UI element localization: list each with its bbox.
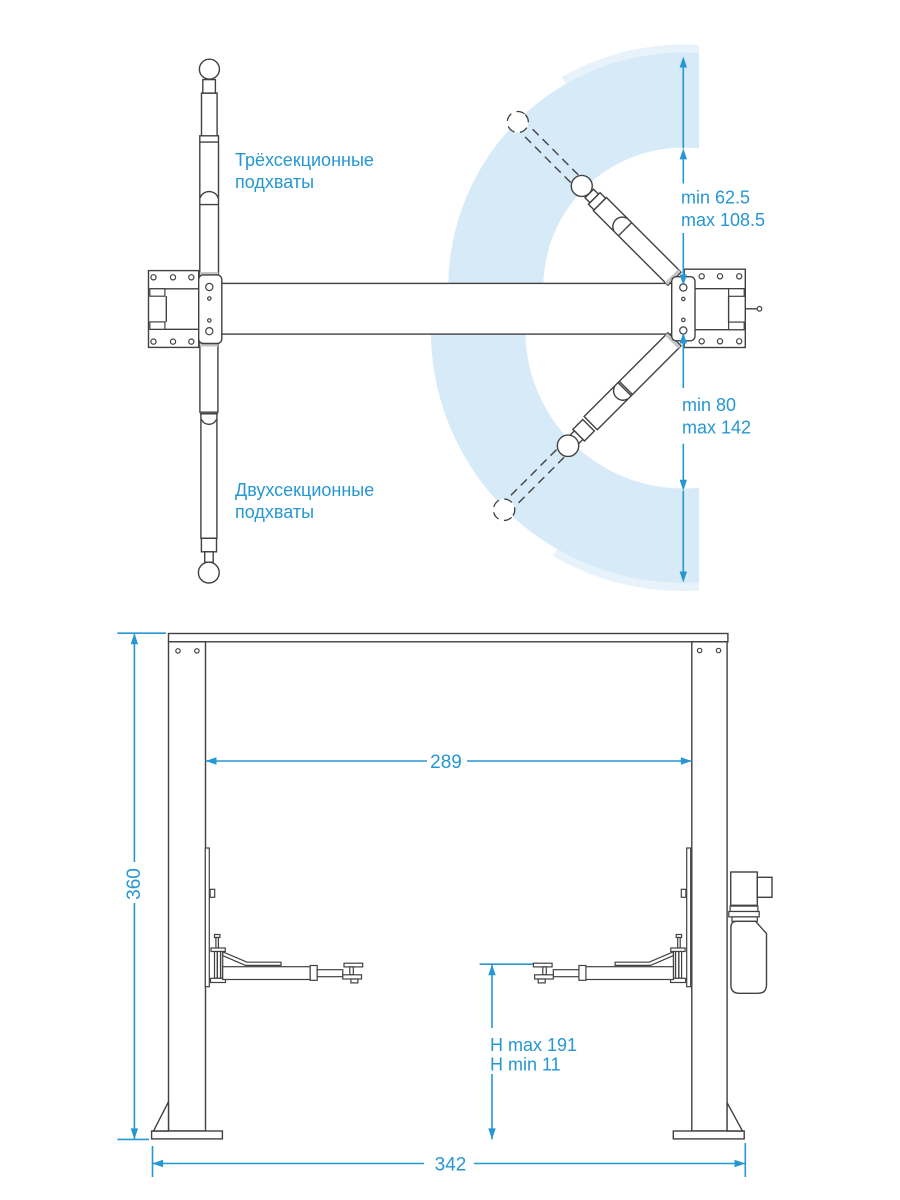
svg-text:Двухсекционные: Двухсекционные: [235, 480, 374, 500]
svg-text:max 142: max 142: [682, 418, 751, 438]
svg-text:H max 191: H max 191: [490, 1035, 577, 1055]
svg-text:подхваты: подхваты: [235, 172, 314, 192]
svg-text:H min 11: H min 11: [490, 1055, 561, 1075]
svg-text:Трёхсекционные: Трёхсекционные: [235, 150, 374, 170]
svg-text:342: 342: [435, 1155, 467, 1176]
svg-text:min 62.5: min 62.5: [681, 188, 750, 208]
svg-text:max 108.5: max 108.5: [681, 210, 765, 230]
svg-text:360: 360: [124, 868, 145, 900]
svg-text:289: 289: [430, 752, 462, 773]
svg-text:подхваты: подхваты: [235, 502, 314, 522]
svg-text:min 80: min 80: [682, 395, 736, 415]
